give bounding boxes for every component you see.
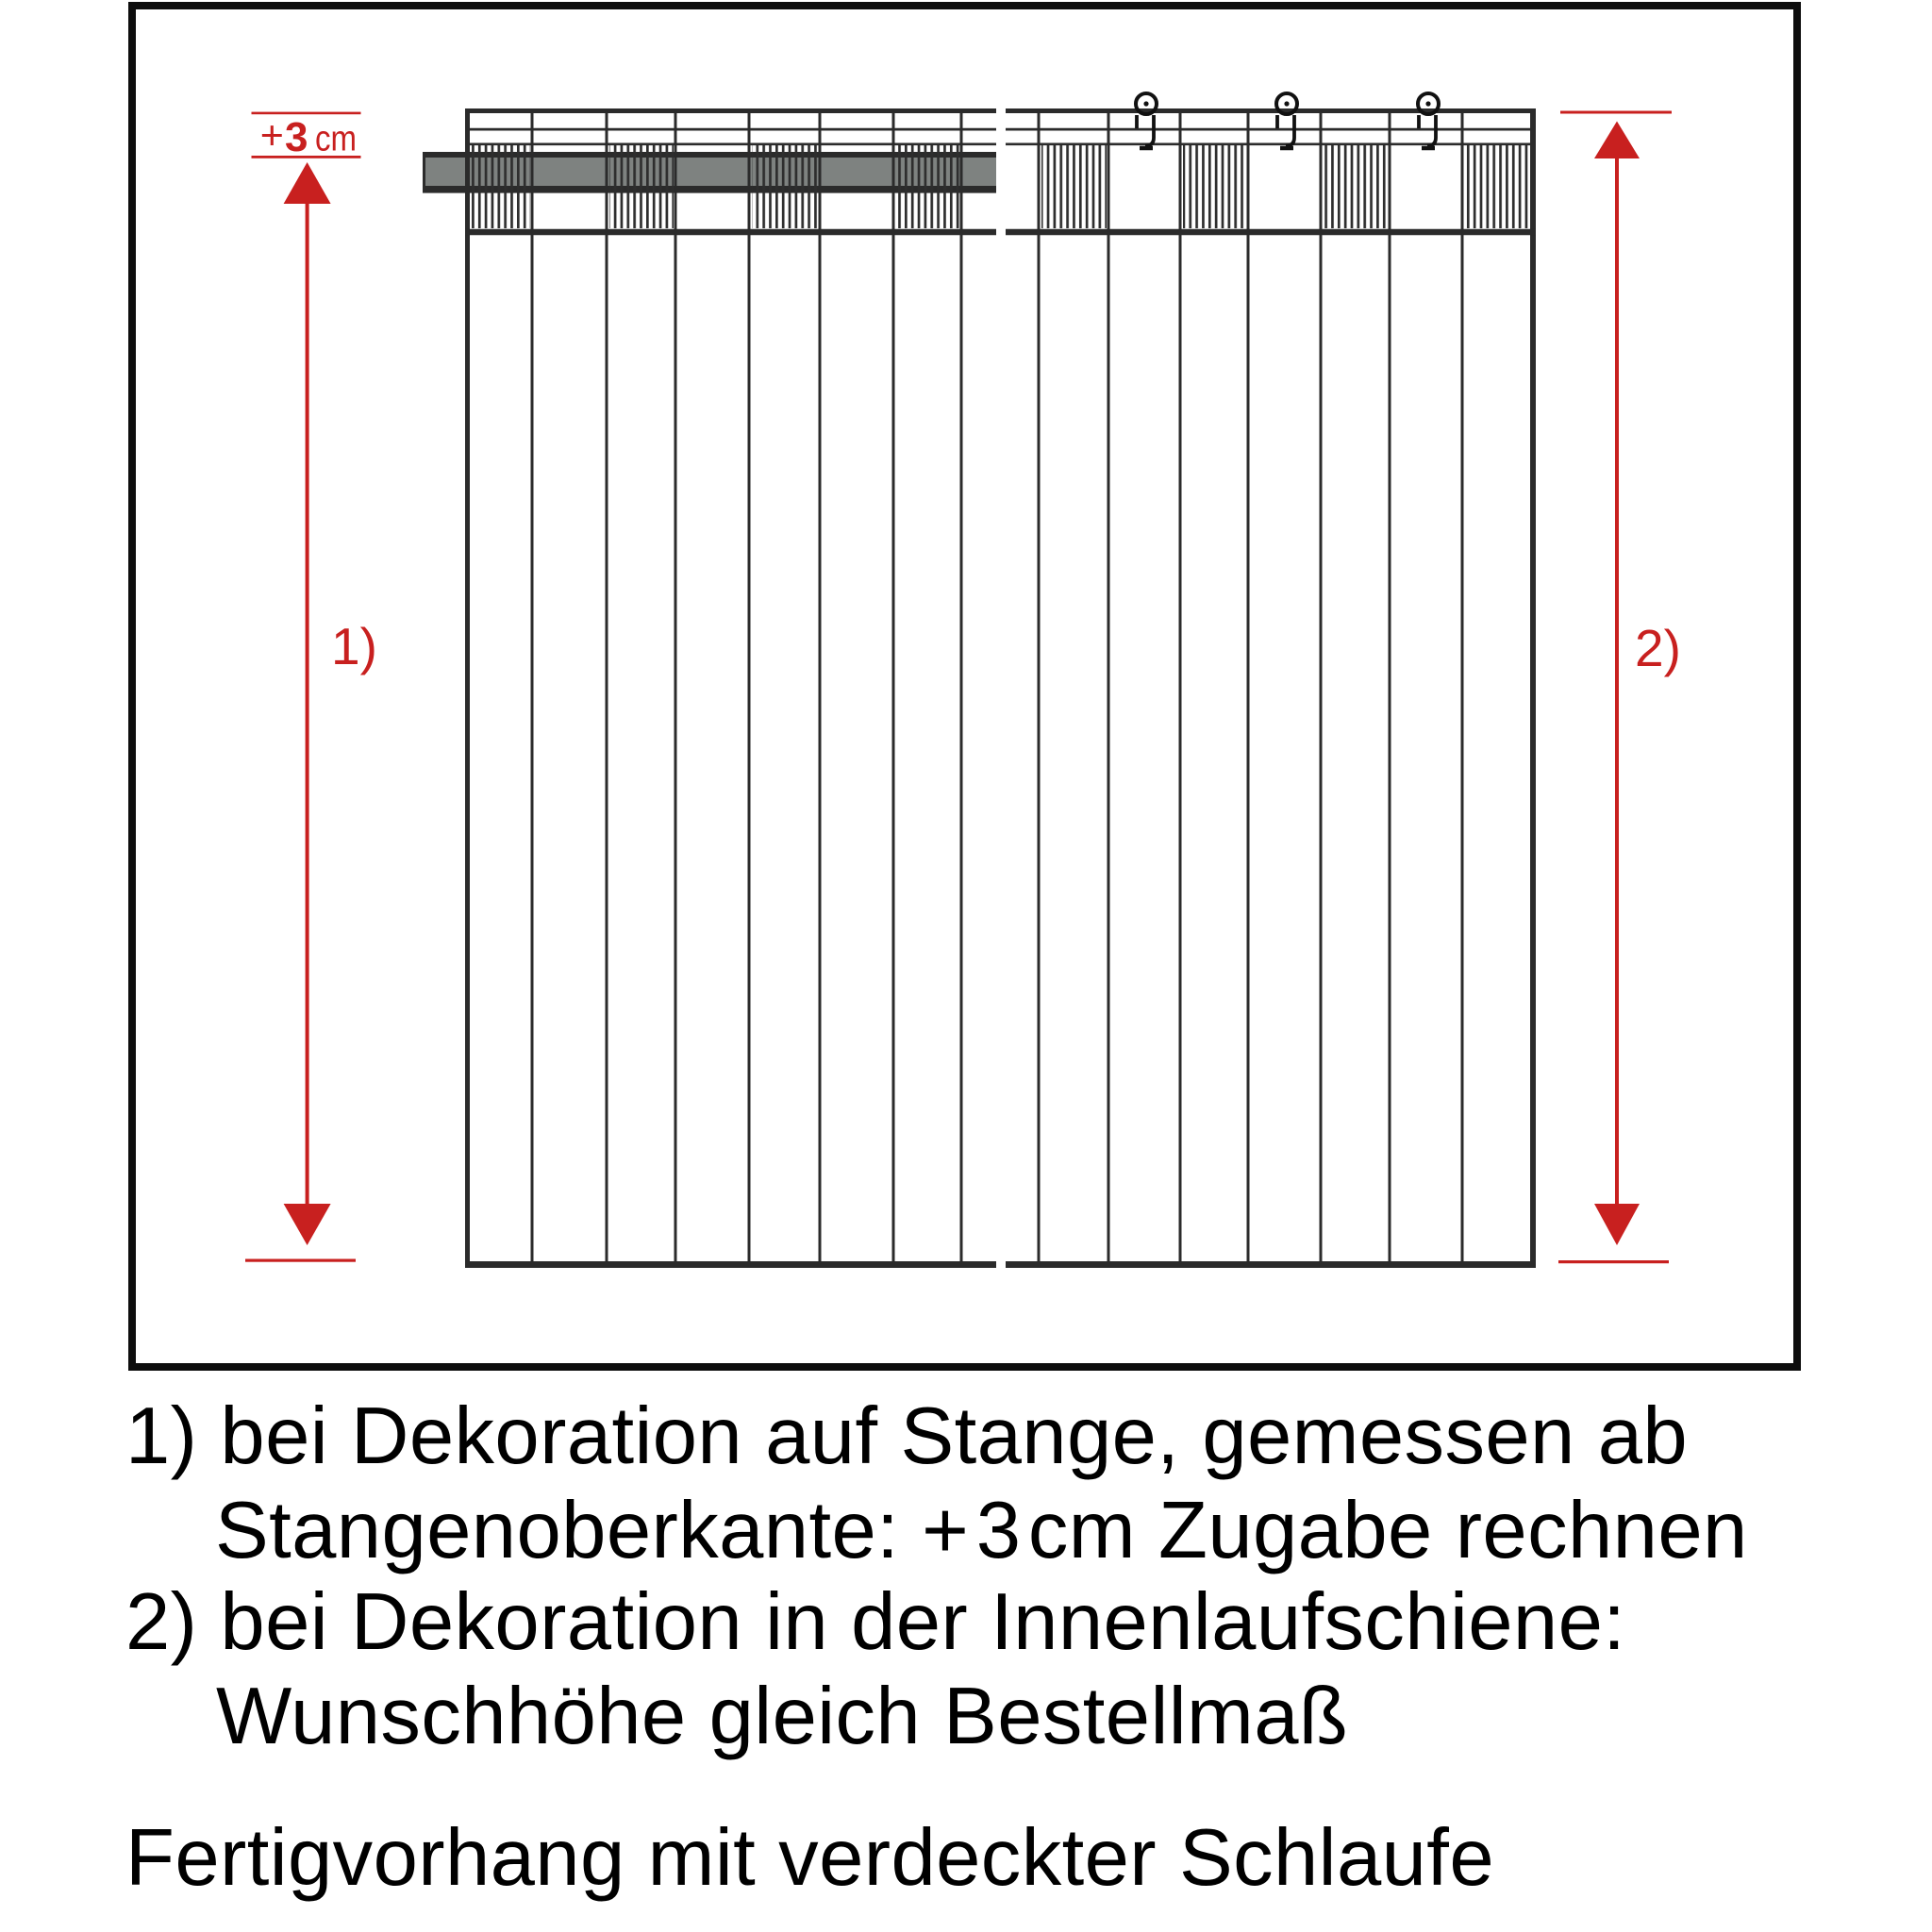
svg-text:+: + [260,113,284,158]
svg-text:cm: cm [315,120,357,159]
svg-text:1): 1) [331,617,377,675]
svg-text:2): 2) [1635,619,1681,677]
svg-text:1) bei Dekoration auf Stange,: 1) bei Dekoration auf Stange, gemessen a… [125,1391,1688,1481]
svg-text:3: 3 [285,114,308,160]
svg-text:Fertigvorhang mit verdeckter S: Fertigvorhang mit verdeckter Schlaufe [125,1813,1494,1903]
svg-text:2) bei Dekoration in der Innen: 2) bei Dekoration in der Innenlaufschien… [125,1577,1625,1667]
svg-text:Stangenoberkante: + 3 cm Zugab: Stangenoberkante: + 3 cm Zugabe rechnen [215,1486,1748,1575]
svg-text:Wunschhöhe gleich Bestellmaß: Wunschhöhe gleich Bestellmaß [216,1672,1348,1761]
